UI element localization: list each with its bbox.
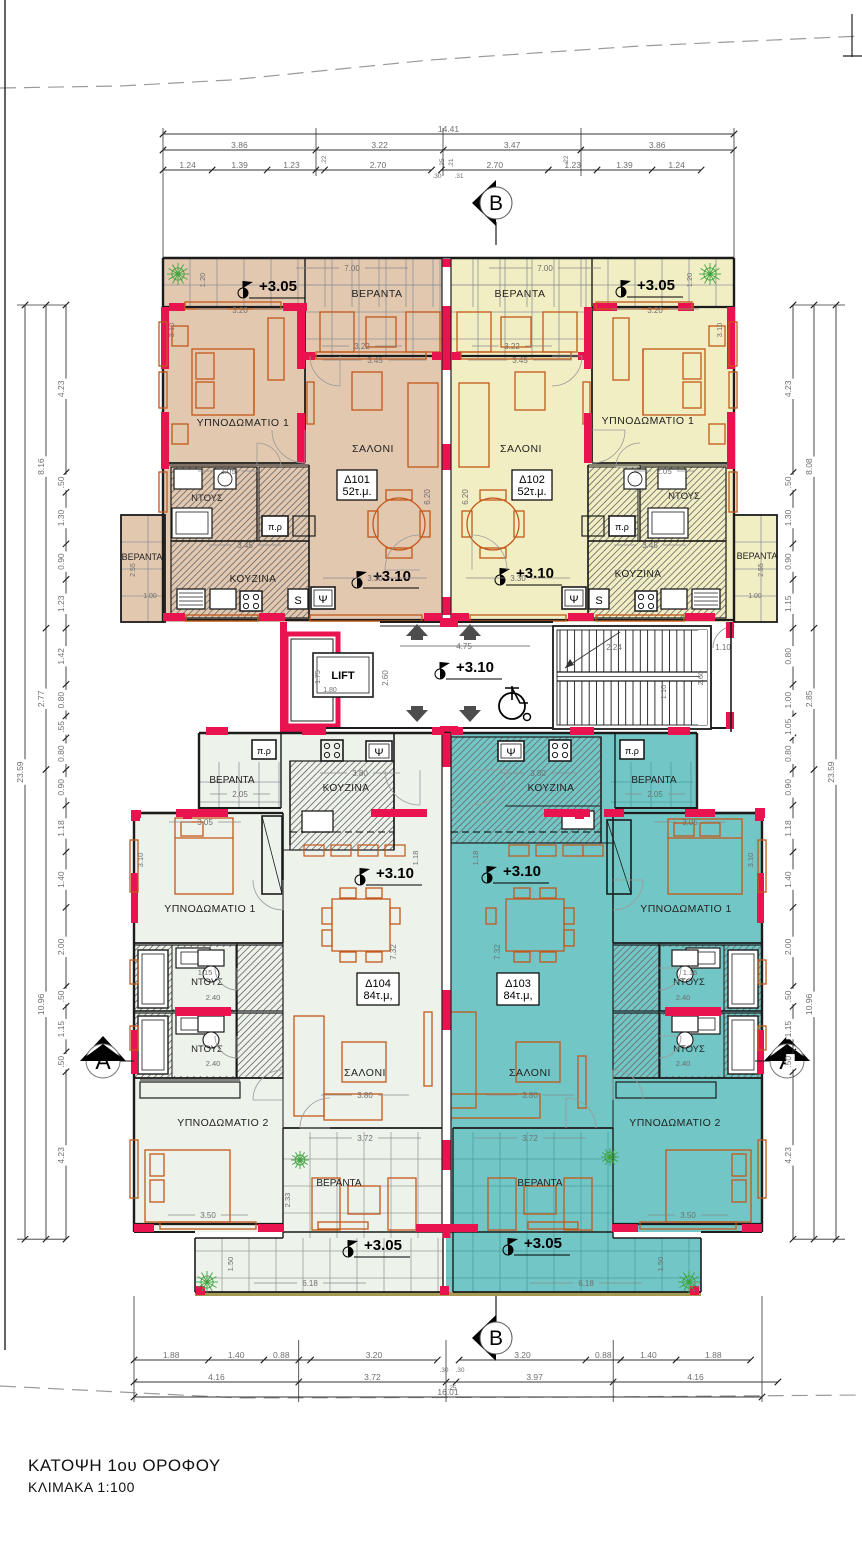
svg-text:ΒΕΡΑΝΤΑ: ΒΕΡΑΝΤΑ xyxy=(122,552,163,562)
svg-text:1.42: 1.42 xyxy=(56,648,66,665)
svg-text:3.05: 3.05 xyxy=(197,818,213,827)
svg-text:0.80: 0.80 xyxy=(56,745,66,762)
svg-text:2.05: 2.05 xyxy=(647,790,663,799)
svg-text:.50: .50 xyxy=(56,990,66,1002)
svg-text:3.20: 3.20 xyxy=(647,306,663,315)
svg-text:+3.05: +3.05 xyxy=(637,277,675,294)
svg-text:0.88: 0.88 xyxy=(273,1350,290,1360)
svg-text:1.20: 1.20 xyxy=(685,273,694,288)
svg-text:7.32: 7.32 xyxy=(389,944,398,960)
svg-text:1.18: 1.18 xyxy=(783,820,793,837)
svg-text:2.00: 2.00 xyxy=(56,938,66,955)
svg-text:Ψ: Ψ xyxy=(318,594,327,606)
svg-text:0.80: 0.80 xyxy=(783,648,793,665)
svg-text:+3.05: +3.05 xyxy=(364,1237,402,1254)
svg-text:2.05: 2.05 xyxy=(232,790,248,799)
svg-text:3.50: 3.50 xyxy=(680,1211,696,1220)
svg-text:3.72: 3.72 xyxy=(522,1134,538,1143)
svg-text:ΣΑΛΟΝΙ: ΣΑΛΟΝΙ xyxy=(500,443,542,455)
svg-text:0.90: 0.90 xyxy=(56,553,66,570)
svg-text:8.08: 8.08 xyxy=(804,458,814,475)
svg-text:10.96: 10.96 xyxy=(804,993,814,1015)
svg-text:1.80: 1.80 xyxy=(323,687,337,694)
svg-text:ΥΠΝΟΔΩΜΑΤΙΟ 2: ΥΠΝΟΔΩΜΑΤΙΟ 2 xyxy=(629,1117,720,1129)
svg-text:ΒΕΡΑΝΤΑ: ΒΕΡΑΝΤΑ xyxy=(631,775,677,786)
svg-text:1.40: 1.40 xyxy=(640,1350,657,1360)
svg-text:4.23: 4.23 xyxy=(783,1147,793,1164)
svg-text:1.05: 1.05 xyxy=(783,718,793,735)
svg-text:1.15: 1.15 xyxy=(783,595,793,612)
svg-text:3.10: 3.10 xyxy=(715,323,724,338)
svg-text:+3.10: +3.10 xyxy=(376,865,414,882)
svg-text:ΝΤΟΥΣ: ΝΤΟΥΣ xyxy=(673,1044,705,1055)
svg-text:2.40: 2.40 xyxy=(206,1059,221,1068)
svg-text:3.72: 3.72 xyxy=(364,1372,381,1382)
svg-text:.25: .25 xyxy=(439,158,446,167)
svg-text:ΣΑΛΟΝΙ: ΣΑΛΟΝΙ xyxy=(352,443,394,455)
svg-text:2.85: 2.85 xyxy=(804,690,814,707)
svg-text:.50: .50 xyxy=(783,1056,793,1068)
svg-text:2.40: 2.40 xyxy=(676,993,691,1002)
svg-text:1.23: 1.23 xyxy=(283,160,300,170)
svg-text:1.20: 1.20 xyxy=(198,273,207,288)
svg-text:Δ104: Δ104 xyxy=(365,978,391,990)
svg-text:+3.10: +3.10 xyxy=(456,659,494,676)
svg-text:4.23: 4.23 xyxy=(783,380,793,397)
svg-text:1.40: 1.40 xyxy=(56,871,66,888)
svg-text:ΒΕΡΑΝΤΑ: ΒΕΡΑΝΤΑ xyxy=(737,551,778,561)
svg-text:0.80: 0.80 xyxy=(56,692,66,709)
svg-text:Δ101: Δ101 xyxy=(344,474,370,486)
svg-text:3.10: 3.10 xyxy=(136,853,145,868)
svg-text:3.80: 3.80 xyxy=(530,769,546,778)
svg-text:8.16: 8.16 xyxy=(36,458,46,475)
svg-text:.31: .31 xyxy=(454,173,463,180)
svg-text:S: S xyxy=(294,595,301,607)
svg-text:23.59: 23.59 xyxy=(15,761,25,783)
svg-text:2.24: 2.24 xyxy=(606,643,622,652)
svg-text:ΚΑΤΟΨΗ 1ου ΟΡΟΦΟΥ: ΚΑΤΟΨΗ 1ου ΟΡΟΦΟΥ xyxy=(28,1456,221,1475)
svg-text:4.23: 4.23 xyxy=(56,380,66,397)
svg-text:3.97: 3.97 xyxy=(526,1372,543,1382)
svg-text:6.20: 6.20 xyxy=(461,489,470,505)
svg-text:1.10: 1.10 xyxy=(659,685,668,700)
svg-text:Δ103: Δ103 xyxy=(505,978,531,990)
svg-text:3.30: 3.30 xyxy=(510,574,526,583)
svg-text:1.15: 1.15 xyxy=(198,968,213,977)
svg-text:π.ρ: π.ρ xyxy=(625,746,639,756)
svg-text:4.23: 4.23 xyxy=(56,1147,66,1164)
svg-text:6.18: 6.18 xyxy=(302,1279,318,1288)
svg-text:1.50: 1.50 xyxy=(656,1257,665,1272)
svg-text:1.24: 1.24 xyxy=(179,160,196,170)
svg-text:23.59: 23.59 xyxy=(826,761,836,783)
svg-text:ΝΤΟΥΣ: ΝΤΟΥΣ xyxy=(191,977,223,988)
svg-text:3.22: 3.22 xyxy=(371,140,388,150)
svg-text:2.05: 2.05 xyxy=(220,467,236,476)
svg-text:3.80: 3.80 xyxy=(522,1091,538,1100)
svg-text:.50: .50 xyxy=(56,1056,66,1068)
svg-text:3.50: 3.50 xyxy=(200,1211,216,1220)
svg-text:1.40: 1.40 xyxy=(228,1350,245,1360)
svg-text:3.86: 3.86 xyxy=(231,140,248,150)
svg-text:3.47: 3.47 xyxy=(504,140,521,150)
svg-text:ΣΑΛΟΝΙ: ΣΑΛΟΝΙ xyxy=(344,1067,386,1079)
svg-text:6.20: 6.20 xyxy=(423,489,432,505)
svg-text:84τ.μ,: 84τ.μ, xyxy=(363,990,392,1002)
svg-text:3.86: 3.86 xyxy=(649,140,666,150)
svg-text:Ψ: Ψ xyxy=(506,747,515,759)
svg-text:0.90: 0.90 xyxy=(783,779,793,796)
svg-text:ΝΤΟΥΣ: ΝΤΟΥΣ xyxy=(191,1044,223,1055)
svg-text:1.00: 1.00 xyxy=(748,593,762,600)
svg-text:84τ.μ,: 84τ.μ, xyxy=(503,990,532,1002)
svg-text:ΣΑΛΟΝΙ: ΣΑΛΟΝΙ xyxy=(509,1067,551,1079)
svg-text:1.24: 1.24 xyxy=(668,160,685,170)
svg-text:ΒΕΡΑΝΤΑ: ΒΕΡΑΝΤΑ xyxy=(495,288,546,300)
svg-text:2.70: 2.70 xyxy=(370,160,387,170)
svg-text:ΚΟΥΖΙΝΑ: ΚΟΥΖΙΝΑ xyxy=(323,783,370,794)
svg-text:1.39: 1.39 xyxy=(616,160,633,170)
svg-text:4.75: 4.75 xyxy=(456,642,472,651)
svg-text:2.77: 2.77 xyxy=(36,690,46,707)
svg-text:6.18: 6.18 xyxy=(578,1279,594,1288)
svg-text:+3.05: +3.05 xyxy=(259,278,297,295)
svg-text:2.55: 2.55 xyxy=(130,563,137,577)
svg-text:0.80: 0.80 xyxy=(783,745,793,762)
svg-text:3.80: 3.80 xyxy=(352,769,368,778)
svg-text:1.88: 1.88 xyxy=(705,1350,722,1360)
svg-text:ΒΕΡΑΝΤΑ: ΒΕΡΑΝΤΑ xyxy=(316,1178,362,1189)
svg-text:52τ.μ.: 52τ.μ. xyxy=(517,486,546,498)
svg-text:1.30: 1.30 xyxy=(56,509,66,526)
svg-text:14.41: 14.41 xyxy=(438,124,460,134)
svg-text:1.10: 1.10 xyxy=(715,643,731,652)
svg-text:ΝΤΟΥΣ: ΝΤΟΥΣ xyxy=(668,491,700,502)
svg-text:ΚΟΥΖΙΝΑ: ΚΟΥΖΙΝΑ xyxy=(230,574,277,585)
svg-text:4.16: 4.16 xyxy=(687,1372,704,1382)
svg-text:π.ρ: π.ρ xyxy=(257,746,271,756)
svg-text:2.05: 2.05 xyxy=(656,467,672,476)
svg-text:ΥΠΝΟΔΩΜΑΤΙΟ 1: ΥΠΝΟΔΩΜΑΤΙΟ 1 xyxy=(164,903,255,915)
svg-text:ΚΟΥΖΙΝΑ: ΚΟΥΖΙΝΑ xyxy=(528,783,575,794)
svg-text:ΒΕΡΑΝΤΑ: ΒΕΡΑΝΤΑ xyxy=(517,1178,563,1189)
svg-text:1.50: 1.50 xyxy=(226,1257,235,1272)
svg-text:.30: .30 xyxy=(439,1367,448,1374)
svg-text:3.45: 3.45 xyxy=(642,541,658,550)
svg-text:ΒΕΡΑΝΤΑ: ΒΕΡΑΝΤΑ xyxy=(352,288,403,300)
svg-text:1.15: 1.15 xyxy=(683,968,698,977)
svg-text:3.45: 3.45 xyxy=(512,356,528,365)
svg-text:.50: .50 xyxy=(56,476,66,488)
svg-text:.21: .21 xyxy=(448,158,455,167)
svg-text:.30: .30 xyxy=(455,1367,464,1374)
svg-text:.50: .50 xyxy=(783,476,793,488)
svg-text:2.40: 2.40 xyxy=(206,993,221,1002)
svg-text:2.33: 2.33 xyxy=(283,1193,292,1208)
svg-text:7.00: 7.00 xyxy=(537,264,553,273)
svg-text:52τ.μ.: 52τ.μ. xyxy=(342,486,371,498)
svg-text:0.88: 0.88 xyxy=(595,1350,612,1360)
svg-text:2.40: 2.40 xyxy=(676,1059,691,1068)
svg-text:3.45: 3.45 xyxy=(237,541,253,550)
svg-text:ΝΤΟΥΣ: ΝΤΟΥΣ xyxy=(191,493,223,504)
svg-text:3.72: 3.72 xyxy=(357,1134,373,1143)
svg-text:ΒΕΡΑΝΤΑ: ΒΕΡΑΝΤΑ xyxy=(209,775,255,786)
svg-text:0.90: 0.90 xyxy=(783,553,793,570)
svg-text:1.75: 1.75 xyxy=(315,670,322,684)
svg-text:1.39: 1.39 xyxy=(231,160,248,170)
svg-text:.30: .30 xyxy=(432,173,441,180)
svg-text:3.30: 3.30 xyxy=(367,574,383,583)
svg-text:Ψ: Ψ xyxy=(569,594,578,606)
svg-text:3.45: 3.45 xyxy=(367,356,383,365)
svg-text:π.ρ: π.ρ xyxy=(268,522,282,532)
svg-text:.50: .50 xyxy=(783,990,793,1002)
svg-text:ΥΠΝΟΔΩΜΑΤΙΟ 2: ΥΠΝΟΔΩΜΑΤΙΟ 2 xyxy=(177,1117,268,1129)
svg-text:2.60: 2.60 xyxy=(381,670,390,686)
svg-text:π.ρ: π.ρ xyxy=(615,522,629,532)
svg-text:10.96: 10.96 xyxy=(36,993,46,1015)
svg-text:2.00: 2.00 xyxy=(783,938,793,955)
svg-text:Δ102: Δ102 xyxy=(519,474,545,486)
svg-text:S: S xyxy=(595,595,602,607)
svg-text:.25: .25 xyxy=(447,1385,456,1392)
svg-text:Ψ: Ψ xyxy=(374,747,383,759)
svg-text:.22: .22 xyxy=(563,155,570,164)
svg-text:0.90: 0.90 xyxy=(56,779,66,796)
svg-text:+3.05: +3.05 xyxy=(524,1235,562,1252)
svg-text:1.23: 1.23 xyxy=(56,595,66,612)
svg-text:ΚΟΥΖΙΝΑ: ΚΟΥΖΙΝΑ xyxy=(615,569,662,580)
svg-text:2.60: 2.60 xyxy=(696,671,705,686)
svg-text:B: B xyxy=(489,1327,503,1350)
svg-text:B: B xyxy=(489,192,503,215)
svg-text:1.18: 1.18 xyxy=(471,851,480,866)
svg-text:1.30: 1.30 xyxy=(783,509,793,526)
svg-text:1.00: 1.00 xyxy=(143,593,157,600)
svg-text:3.10: 3.10 xyxy=(746,853,755,868)
svg-text:7.00: 7.00 xyxy=(344,264,360,273)
svg-text:2.70: 2.70 xyxy=(487,160,504,170)
svg-text:ΚΛΙΜΑΚΑ 1:100: ΚΛΙΜΑΚΑ 1:100 xyxy=(28,1479,135,1495)
svg-text:.55: .55 xyxy=(56,721,66,733)
svg-text:1.15: 1.15 xyxy=(783,1021,793,1038)
svg-text:A: A xyxy=(95,1048,111,1074)
svg-text:3.22: 3.22 xyxy=(354,342,370,351)
svg-text:+3.10: +3.10 xyxy=(503,863,541,880)
svg-text:3.05: 3.05 xyxy=(682,818,698,827)
svg-text:1.40: 1.40 xyxy=(783,871,793,888)
svg-text:1.18: 1.18 xyxy=(411,851,420,866)
svg-text:2.55: 2.55 xyxy=(758,563,765,577)
svg-text:LIFT: LIFT xyxy=(331,670,354,682)
svg-text:ΥΠΝΟΔΩΜΑΤΙΟ 1: ΥΠΝΟΔΩΜΑΤΙΟ 1 xyxy=(197,417,290,429)
svg-text:ΥΠΝΟΔΩΜΑΤΙΟ 1: ΥΠΝΟΔΩΜΑΤΙΟ 1 xyxy=(602,415,695,427)
svg-text:1.00: 1.00 xyxy=(783,692,793,709)
svg-text:.22: .22 xyxy=(321,155,328,164)
svg-text:3.20: 3.20 xyxy=(232,306,248,315)
svg-text:ΥΠΝΟΔΩΜΑΤΙΟ 1: ΥΠΝΟΔΩΜΑΤΙΟ 1 xyxy=(640,903,731,915)
svg-text:4.16: 4.16 xyxy=(208,1372,225,1382)
svg-text:3.80: 3.80 xyxy=(357,1091,373,1100)
svg-text:7.32: 7.32 xyxy=(493,944,502,960)
svg-text:1.88: 1.88 xyxy=(163,1350,180,1360)
svg-text:1.18: 1.18 xyxy=(56,820,66,837)
svg-text:3.22: 3.22 xyxy=(504,342,520,351)
svg-text:3.10: 3.10 xyxy=(167,323,176,338)
svg-text:1.15: 1.15 xyxy=(56,1021,66,1038)
svg-text:3.20: 3.20 xyxy=(514,1350,531,1360)
svg-text:3.20: 3.20 xyxy=(366,1350,383,1360)
